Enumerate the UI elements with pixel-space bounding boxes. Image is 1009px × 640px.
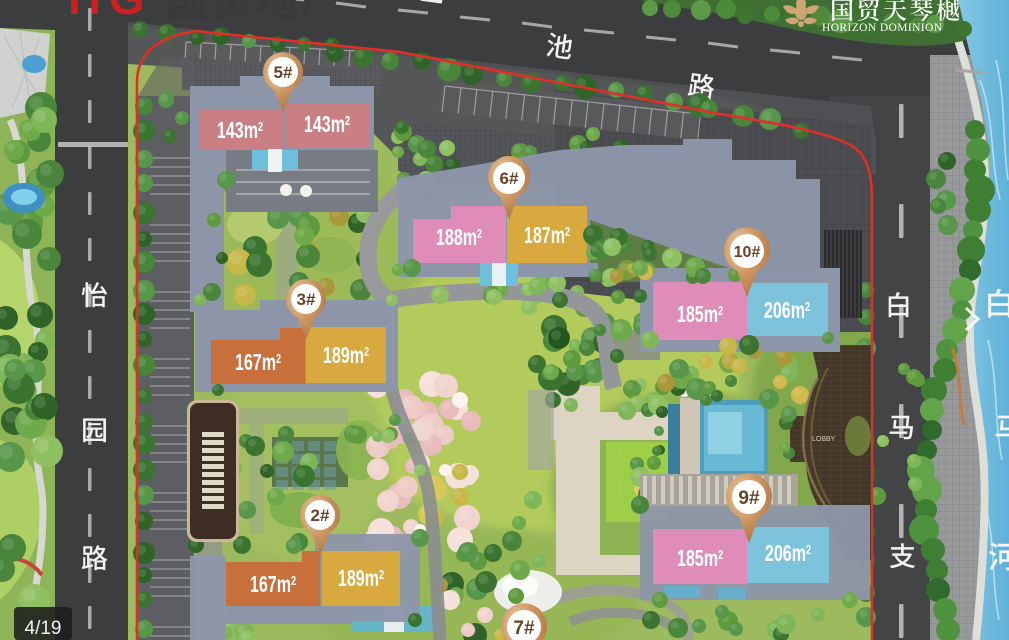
svg-text:188m2: 188m2: [436, 225, 482, 250]
svg-text:189m2: 189m2: [323, 343, 369, 368]
svg-text:10#: 10#: [734, 244, 761, 261]
svg-text:ITG: ITG: [68, 0, 145, 24]
svg-text:5#: 5#: [274, 63, 293, 82]
svg-text:206m2: 206m2: [764, 298, 810, 323]
svg-text:189m2: 189m2: [338, 566, 384, 591]
svg-text:143m2: 143m2: [217, 118, 263, 143]
svg-text:6#: 6#: [500, 169, 519, 188]
svg-text:9#: 9#: [738, 488, 760, 509]
svg-text:LOBBY: LOBBY: [812, 436, 836, 443]
svg-text:167m2: 167m2: [235, 350, 281, 375]
svg-text:2#: 2#: [311, 506, 330, 525]
svg-text:185m2: 185m2: [677, 546, 723, 571]
svg-text:3#: 3#: [297, 290, 316, 309]
svg-text:143m2: 143m2: [304, 112, 350, 137]
svg-text:187m2: 187m2: [524, 223, 570, 248]
svg-text:4/19: 4/19: [25, 618, 62, 639]
svg-text:185m2: 185m2: [677, 302, 723, 327]
svg-text:7#: 7#: [513, 618, 535, 639]
svg-text:HORIZON DOMINION: HORIZON DOMINION: [822, 22, 943, 34]
svg-text:206m2: 206m2: [765, 541, 811, 566]
svg-text:167m2: 167m2: [250, 572, 296, 597]
